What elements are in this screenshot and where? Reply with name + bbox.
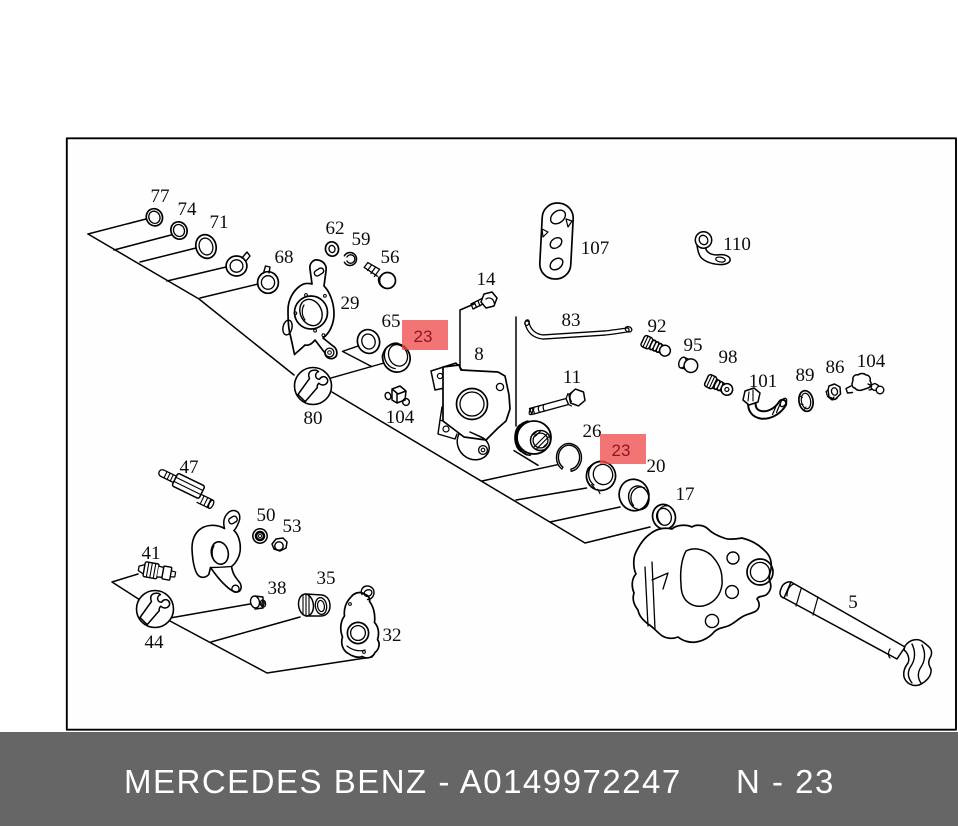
svg-text:47: 47 (180, 457, 199, 478)
svg-text:68: 68 (275, 247, 294, 268)
svg-text:77: 77 (151, 186, 170, 207)
svg-text:92: 92 (648, 316, 667, 337)
svg-text:98: 98 (719, 347, 738, 368)
svg-text:29: 29 (341, 293, 360, 314)
svg-text:41: 41 (142, 543, 161, 564)
svg-text:83: 83 (562, 310, 581, 331)
svg-text:101: 101 (749, 371, 778, 392)
svg-text:23: 23 (414, 327, 433, 346)
svg-text:71: 71 (210, 212, 229, 233)
svg-text:17: 17 (676, 484, 695, 505)
svg-text:65: 65 (382, 311, 401, 332)
svg-text:95: 95 (684, 335, 703, 356)
svg-text:35: 35 (317, 568, 336, 589)
svg-text:80: 80 (304, 408, 323, 429)
svg-text:32: 32 (383, 625, 402, 646)
svg-text:104: 104 (386, 407, 415, 428)
svg-text:59: 59 (352, 229, 371, 250)
svg-text:86: 86 (826, 357, 845, 378)
svg-text:26: 26 (583, 421, 602, 442)
svg-text:14: 14 (477, 269, 497, 290)
svg-text:38: 38 (268, 578, 287, 599)
svg-text:62: 62 (326, 218, 345, 239)
svg-text:5: 5 (848, 592, 858, 613)
svg-text:53: 53 (283, 516, 302, 537)
svg-text:8: 8 (474, 344, 484, 365)
svg-text:89: 89 (796, 365, 815, 386)
svg-text:74: 74 (178, 199, 198, 220)
svg-text:MERCEDES BENZ - A0149972247: MERCEDES BENZ - A0149972247 (124, 763, 682, 800)
svg-text:N - 23: N - 23 (736, 763, 835, 800)
svg-text:107: 107 (581, 238, 610, 259)
svg-text:56: 56 (381, 247, 400, 268)
svg-text:23: 23 (612, 441, 631, 460)
svg-text:50: 50 (257, 505, 276, 526)
svg-text:110: 110 (723, 234, 751, 255)
svg-text:11: 11 (563, 367, 581, 388)
svg-text:44: 44 (145, 632, 165, 653)
svg-text:20: 20 (647, 456, 666, 477)
svg-text:104: 104 (857, 351, 886, 372)
